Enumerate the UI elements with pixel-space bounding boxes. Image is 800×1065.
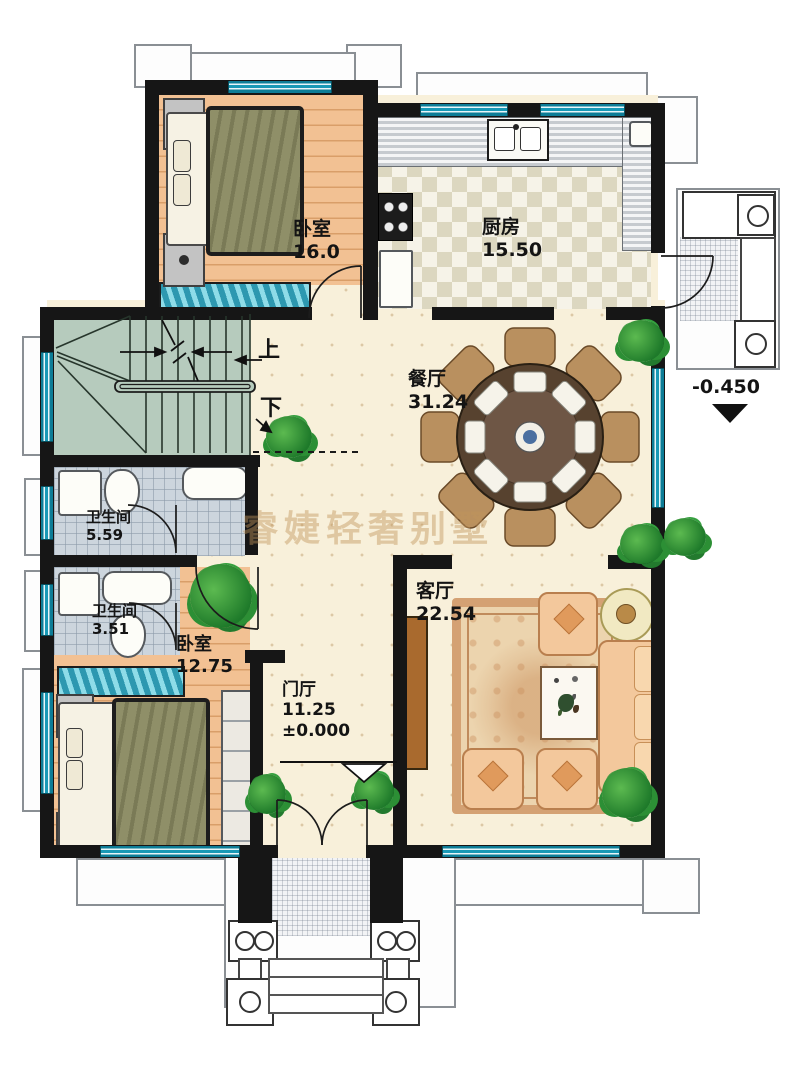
room-label-dining: 餐厅 31.24: [408, 368, 468, 414]
stair-down-label: 下: [260, 396, 282, 422]
floor-plan: 卧室 16.0 厨房 15.50 餐厅 31.24 卫生间 5.59 卫生间 3…: [0, 0, 800, 1065]
side-elevation-label: -0.450: [692, 376, 760, 399]
room-label-bedroom-bottom: 卧室 12.75: [176, 634, 233, 677]
room-name: 门厅: [282, 680, 350, 700]
stair-direction-arrows: [120, 320, 271, 432]
elevation-value: -0.450: [692, 376, 760, 399]
room-name: 卫生间: [92, 602, 137, 620]
room-label-living: 客厅 22.54: [416, 580, 476, 626]
side-elevation-marker: [712, 404, 748, 423]
room-label-foyer: 门厅 11.25 ±0.000: [282, 680, 350, 741]
room-area: 12.75: [176, 656, 233, 678]
elevation-value: ±0.000: [282, 721, 350, 741]
room-name: 厨房: [482, 216, 542, 239]
room-name: 卧室: [176, 634, 233, 656]
room-area: 16.0: [293, 241, 340, 264]
room-name: 卧室: [293, 218, 340, 241]
stair-direction-text: 上: [258, 338, 280, 364]
foyer-elevation-marker: [280, 762, 397, 782]
room-area: 11.25: [282, 700, 350, 720]
room-label-bathroom-upper: 卫生间 5.59: [86, 508, 131, 544]
room-area: 31.24: [408, 391, 468, 414]
room-area: 5.59: [86, 526, 131, 544]
watermark: 睿婕轻奢别墅: [242, 500, 494, 552]
room-area: 15.50: [482, 239, 542, 262]
room-label-kitchen: 厨房 15.50: [482, 216, 542, 262]
room-label-bedroom-top: 卧室 16.0: [293, 218, 340, 264]
stair-rail: [115, 381, 255, 392]
room-name: 客厅: [416, 580, 476, 603]
room-name: 卫生间: [86, 508, 131, 526]
room-name: 餐厅: [408, 368, 468, 391]
room-area: 3.51: [92, 620, 137, 638]
stair-direction-text: 下: [260, 396, 282, 422]
room-label-bathroom-lower: 卫生间 3.51: [92, 602, 137, 638]
stair-up-label: 上: [258, 338, 280, 364]
room-area: 22.54: [416, 603, 476, 626]
